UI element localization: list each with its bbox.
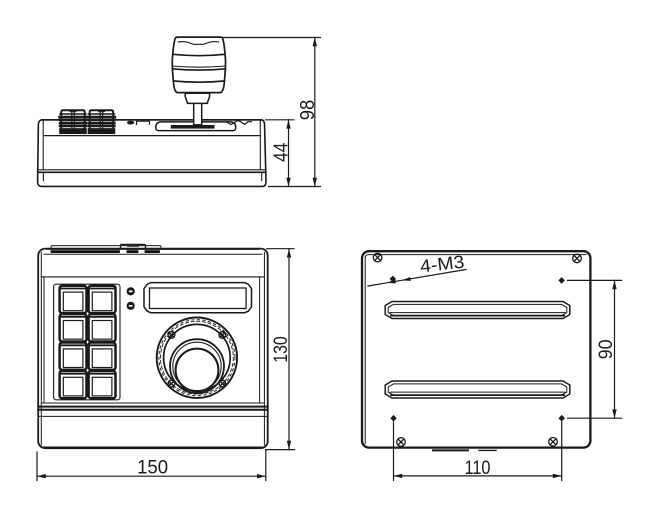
svg-text:110: 110 [465, 458, 491, 479]
svg-text:130: 130 [271, 336, 292, 363]
svg-text:98: 98 [297, 100, 319, 121]
svg-text:90: 90 [596, 340, 617, 360]
svg-text:150: 150 [137, 458, 168, 479]
svg-text:44: 44 [271, 143, 293, 162]
